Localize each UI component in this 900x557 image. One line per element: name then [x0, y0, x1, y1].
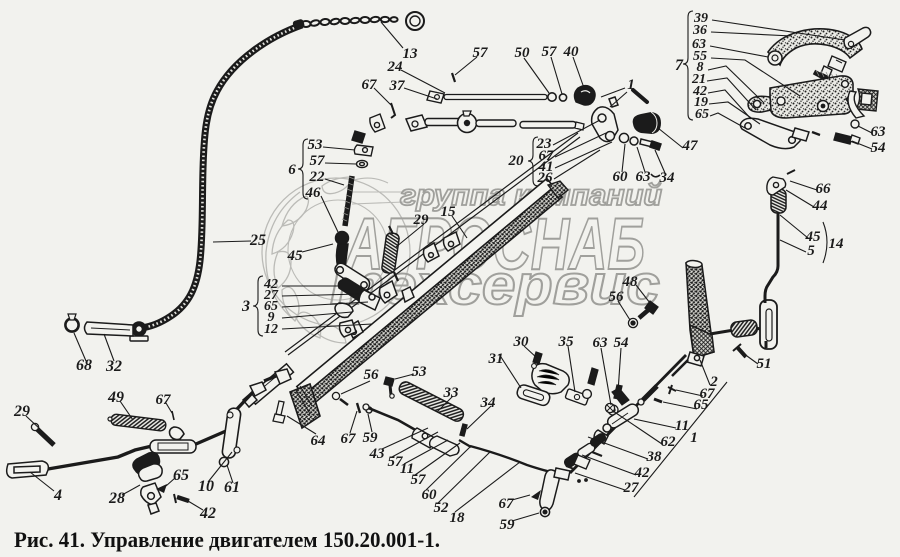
svg-text:Рис. 41. Управление двигателем: Рис. 41. Управление двигателем 150.20.00… [14, 527, 440, 552]
svg-text:38: 38 [646, 449, 663, 465]
svg-text:43: 43 [369, 446, 386, 462]
svg-text:40: 40 [563, 44, 580, 60]
svg-text:7: 7 [675, 57, 684, 74]
svg-text:22: 22 [309, 169, 326, 185]
svg-text:3: 3 [241, 298, 250, 315]
svg-text:64: 64 [311, 433, 327, 449]
svg-text:65: 65 [694, 397, 710, 413]
svg-text:53: 53 [308, 137, 324, 153]
svg-text:37: 37 [389, 78, 406, 94]
svg-text:42: 42 [199, 505, 216, 522]
svg-text:67: 67 [156, 392, 172, 408]
svg-text:30: 30 [513, 334, 530, 350]
svg-text:28: 28 [108, 490, 125, 507]
svg-text:57: 57 [411, 472, 427, 488]
svg-text:техсервис: техсервис [330, 253, 660, 317]
svg-text:60: 60 [613, 169, 629, 185]
svg-text:51: 51 [757, 356, 772, 372]
svg-text:29: 29 [13, 403, 30, 420]
svg-text:15: 15 [441, 204, 457, 220]
svg-text:5: 5 [807, 243, 815, 259]
svg-text:59: 59 [500, 517, 516, 533]
svg-text:36: 36 [692, 23, 707, 38]
svg-text:62: 62 [661, 434, 677, 450]
svg-text:57: 57 [310, 153, 326, 169]
svg-text:56: 56 [609, 289, 625, 305]
svg-text:56: 56 [364, 367, 380, 383]
svg-text:34: 34 [480, 395, 497, 411]
svg-text:65: 65 [695, 107, 709, 122]
svg-text:34: 34 [659, 170, 676, 186]
svg-text:47: 47 [682, 138, 699, 154]
svg-text:63: 63 [593, 335, 609, 351]
svg-text:1: 1 [627, 77, 635, 93]
svg-text:67: 67 [499, 496, 515, 512]
svg-text:63: 63 [871, 124, 887, 140]
svg-text:24: 24 [387, 59, 404, 75]
svg-text:57: 57 [473, 45, 489, 61]
svg-text:53: 53 [412, 364, 428, 380]
svg-text:61: 61 [224, 479, 240, 496]
svg-text:1: 1 [690, 430, 698, 446]
svg-text:49: 49 [107, 389, 124, 406]
svg-text:29: 29 [413, 212, 430, 228]
svg-text:4: 4 [53, 487, 62, 504]
svg-text:42: 42 [634, 465, 651, 481]
svg-text:11: 11 [675, 418, 689, 434]
svg-text:33: 33 [443, 385, 460, 401]
svg-text:54: 54 [614, 335, 630, 351]
svg-text:13: 13 [403, 46, 419, 62]
svg-text:25: 25 [249, 232, 266, 249]
svg-text:50: 50 [515, 45, 531, 61]
svg-text:44: 44 [812, 198, 829, 214]
svg-text:67: 67 [341, 431, 357, 447]
svg-text:46: 46 [305, 185, 322, 201]
svg-text:48: 48 [622, 274, 639, 290]
svg-text:52: 52 [434, 500, 450, 516]
svg-text:45: 45 [287, 248, 304, 264]
svg-text:10: 10 [198, 478, 214, 495]
svg-text:18: 18 [450, 510, 466, 526]
svg-text:59: 59 [363, 430, 379, 446]
svg-text:54: 54 [871, 140, 887, 156]
svg-text:35: 35 [558, 334, 575, 350]
svg-text:20: 20 [508, 153, 525, 169]
svg-text:63: 63 [636, 169, 652, 185]
svg-text:67: 67 [362, 77, 378, 93]
svg-text:12: 12 [264, 322, 278, 337]
svg-text:14: 14 [829, 236, 845, 252]
svg-text:66: 66 [816, 181, 832, 197]
svg-text:32: 32 [105, 358, 122, 375]
svg-text:26: 26 [537, 170, 554, 186]
svg-text:31: 31 [488, 351, 504, 367]
svg-text:6: 6 [288, 162, 296, 178]
svg-text:65: 65 [173, 467, 189, 484]
svg-text:27: 27 [623, 480, 640, 496]
svg-text:68: 68 [76, 357, 92, 374]
svg-text:57: 57 [542, 44, 558, 60]
